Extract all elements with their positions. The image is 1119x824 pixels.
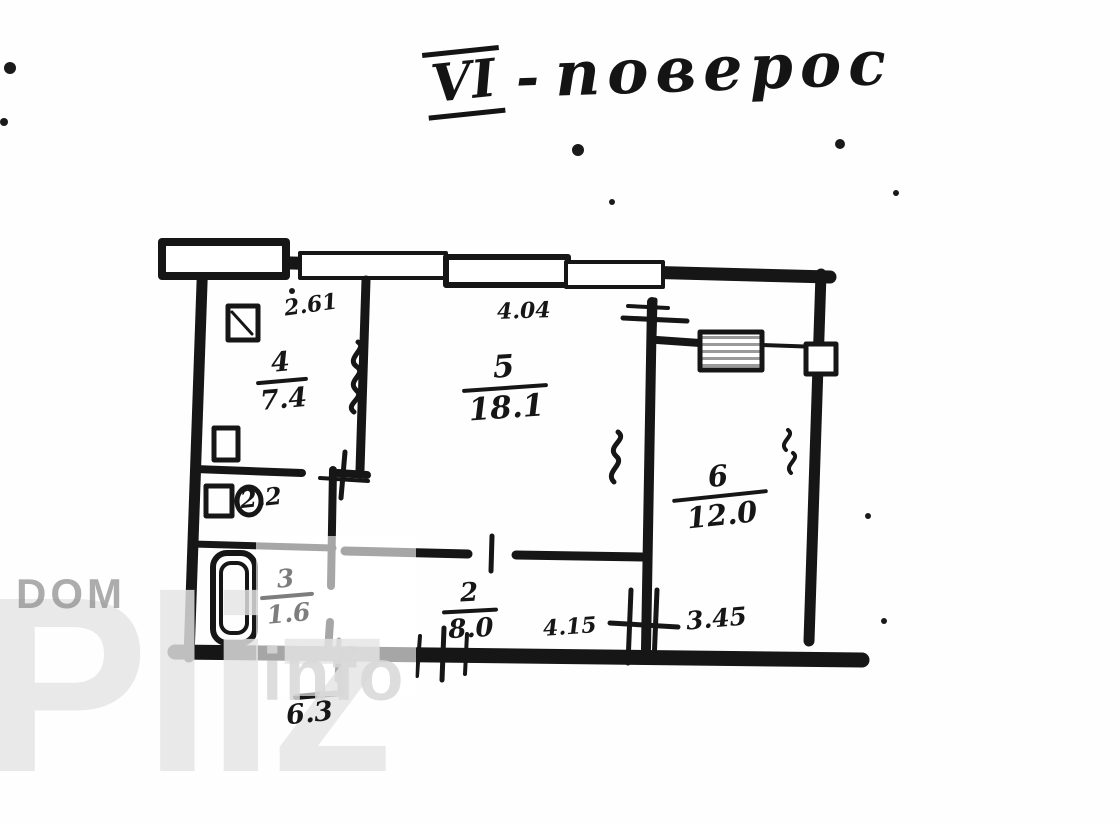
window-icon: [300, 253, 446, 278]
tick-mark: [628, 306, 668, 308]
window-icon: [162, 242, 286, 276]
window-icon: [566, 262, 663, 287]
kitchen-door-mark: [214, 428, 238, 460]
entry-door-tick: [417, 636, 420, 676]
central-wall: [646, 302, 652, 649]
title-word: поверос: [554, 26, 894, 111]
squiggle-note: [784, 430, 790, 450]
balcony-door-icon: [700, 332, 762, 370]
balcony-sill-icon: [806, 344, 836, 374]
bathroom-area-label: 3 1.6: [257, 564, 316, 628]
bedroom-area-label: 6 12.0: [669, 457, 772, 535]
dimension-kitchen-top: 2.61: [283, 290, 339, 319]
kitchen-bottom-wall: [195, 469, 302, 473]
squiggle-note: [611, 432, 620, 482]
tick-mark: [610, 623, 678, 627]
dimension-entry-bottom: 6.3: [285, 698, 335, 730]
scanned-floor-plan: VI-поверос 4 7.4 5 18.1 6 12.0 2.2 3 1.6…: [0, 0, 1119, 768]
watermark-dom: DOM: [16, 570, 126, 618]
kitchen-area-label: 4 7.4: [253, 347, 310, 415]
dimension-bedroom-bottom: 3.45: [685, 603, 748, 633]
window-icon: [446, 257, 568, 285]
dimension-hallway-bottom: 4.15: [542, 614, 597, 640]
right-wall: [809, 274, 821, 641]
floor-numeral: VI: [422, 45, 505, 121]
tick-mark: [491, 536, 492, 571]
bedroom-top-wall: [657, 340, 700, 343]
watermark-info: info: [262, 632, 406, 717]
squiggle-note: [789, 453, 795, 473]
hallway-area-label: 2 8.0: [440, 579, 499, 644]
dimension-living-top: 4.04: [497, 299, 551, 323]
living-bottom-wall: [516, 555, 642, 557]
kitchen-vent-icon: [232, 312, 252, 334]
wc-area-label: 2.2: [239, 484, 283, 512]
tick-mark: [341, 452, 345, 498]
sink-icon: [206, 486, 232, 516]
title-dash: -: [515, 44, 541, 111]
living-room-area-label: 5 18.1: [460, 349, 551, 427]
